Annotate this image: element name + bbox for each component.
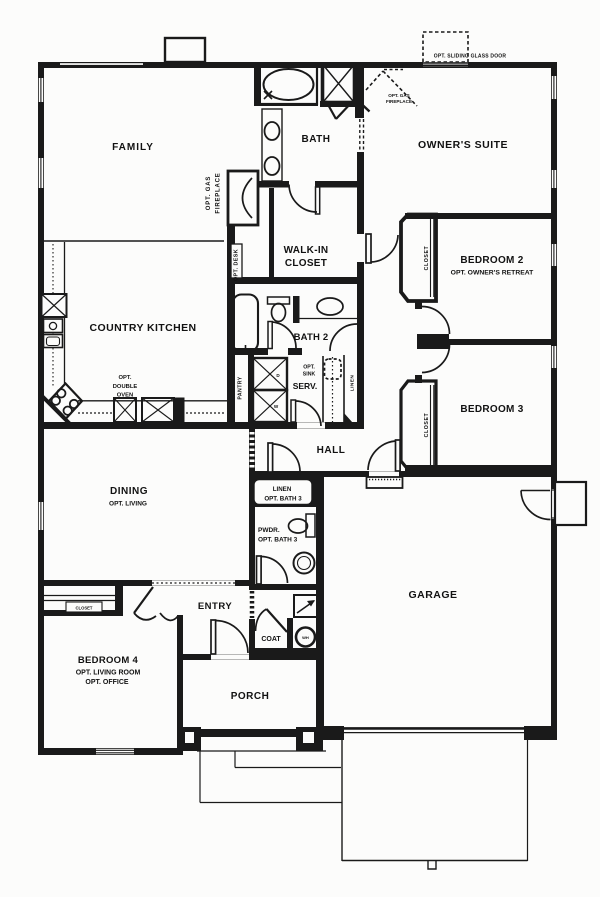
- svg-text:COUNTRY KITCHEN: COUNTRY KITCHEN: [90, 322, 197, 334]
- svg-text:OPT. OWNER'S RETREAT: OPT. OWNER'S RETREAT: [451, 270, 535, 277]
- svg-text:OPT.: OPT.: [303, 365, 315, 371]
- svg-text:BATH 2: BATH 2: [294, 332, 329, 343]
- svg-text:CLOSET: CLOSET: [424, 245, 430, 270]
- svg-text:OWNER'S SUITE: OWNER'S SUITE: [418, 139, 508, 151]
- svg-text:OPT. BATH 3: OPT. BATH 3: [264, 496, 302, 503]
- svg-text:GARAGE: GARAGE: [408, 589, 457, 601]
- svg-text:CLOSET: CLOSET: [285, 258, 327, 269]
- svg-text:BEDROOM 4: BEDROOM 4: [78, 655, 139, 666]
- svg-text:OPT. OFFICE: OPT. OFFICE: [85, 679, 129, 686]
- svg-text:CLOSET: CLOSET: [76, 606, 93, 611]
- svg-text:DOUBLE: DOUBLE: [113, 384, 138, 390]
- svg-text:OPT. LIVING: OPT. LIVING: [109, 501, 147, 508]
- svg-text:SERV.: SERV.: [293, 381, 318, 391]
- svg-text:OPT. DESK: OPT. DESK: [234, 249, 240, 281]
- svg-text:WH: WH: [302, 635, 309, 640]
- svg-text:OPT. SLIDING GLASS DOOR: OPT. SLIDING GLASS DOOR: [434, 54, 507, 60]
- svg-text:CLOSET: CLOSET: [424, 412, 430, 437]
- svg-text:LINEN: LINEN: [350, 375, 356, 392]
- svg-text:W: W: [274, 404, 279, 409]
- svg-text:BEDROOM 2: BEDROOM 2: [460, 255, 523, 266]
- svg-text:PANTRY: PANTRY: [238, 376, 244, 399]
- svg-text:OPT.: OPT.: [119, 375, 132, 381]
- svg-text:PWDR.: PWDR.: [258, 527, 280, 534]
- svg-text:HALL: HALL: [317, 445, 346, 456]
- svg-text:PORCH: PORCH: [231, 691, 270, 702]
- svg-text:OPT. GAS: OPT. GAS: [388, 93, 409, 98]
- svg-text:COAT: COAT: [261, 636, 281, 643]
- svg-text:BATH: BATH: [301, 134, 330, 145]
- svg-text:WALK-IN: WALK-IN: [284, 245, 329, 256]
- svg-text:OPT. LIVING ROOM: OPT. LIVING ROOM: [76, 670, 141, 677]
- svg-text:OPT. GAS: OPT. GAS: [206, 176, 212, 210]
- svg-text:FAMILY: FAMILY: [112, 142, 154, 153]
- svg-text:ENTRY: ENTRY: [198, 601, 233, 612]
- svg-text:BEDROOM 3: BEDROOM 3: [460, 404, 523, 415]
- svg-text:OPT. BATH 3: OPT. BATH 3: [258, 537, 298, 544]
- svg-text:LINEN: LINEN: [273, 486, 292, 493]
- svg-text:FIREPLACE: FIREPLACE: [216, 172, 222, 213]
- svg-text:OVEN: OVEN: [117, 393, 133, 399]
- svg-text:FIREPLACE: FIREPLACE: [386, 99, 412, 104]
- svg-text:DINING: DINING: [110, 486, 148, 497]
- svg-text:SINK: SINK: [303, 372, 316, 378]
